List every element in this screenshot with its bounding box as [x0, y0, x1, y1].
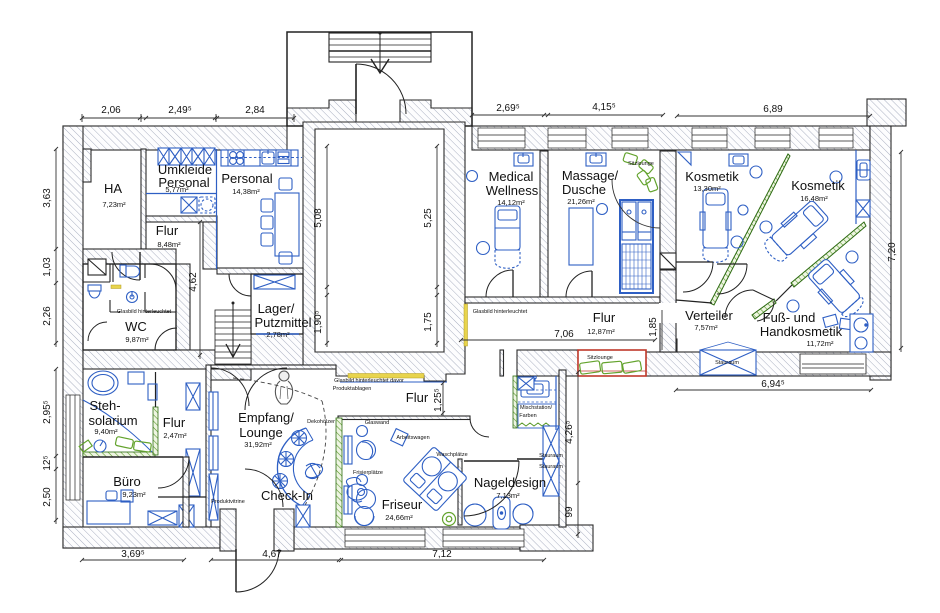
svg-text:Büro: Büro	[113, 474, 140, 489]
svg-text:2,69⁵: 2,69⁵	[496, 103, 520, 114]
svg-text:Massage/: Massage/	[562, 168, 619, 183]
svg-text:Flur: Flur	[163, 415, 186, 430]
svg-text:Produktablagen: Produktablagen	[333, 386, 372, 392]
svg-text:Putzmittel: Putzmittel	[254, 315, 311, 330]
svg-text:7,13m²: 7,13m²	[496, 491, 520, 500]
svg-text:Glasbild hinterleuchtet: Glasbild hinterleuchtet	[473, 309, 528, 315]
svg-text:5,25: 5,25	[423, 208, 434, 228]
svg-text:Verteiler: Verteiler	[685, 308, 733, 323]
svg-text:2,49⁵: 2,49⁵	[168, 105, 192, 116]
svg-text:14,38m²: 14,38m²	[232, 187, 260, 196]
svg-text:Stauraum: Stauraum	[715, 360, 739, 366]
svg-text:4,26⁵: 4,26⁵	[564, 420, 575, 444]
svg-text:9,40m²: 9,40m²	[94, 427, 118, 436]
svg-text:Waschplätze: Waschplätze	[436, 452, 467, 458]
svg-text:5,77m²: 5,77m²	[165, 185, 189, 194]
svg-text:Personal: Personal	[221, 171, 272, 186]
svg-text:1,75: 1,75	[423, 312, 434, 332]
svg-text:Handkosmetik: Handkosmetik	[760, 324, 843, 339]
svg-text:16,48m²: 16,48m²	[800, 194, 828, 203]
svg-text:Kosmetik: Kosmetik	[791, 178, 845, 193]
svg-text:12,87m²: 12,87m²	[587, 327, 615, 336]
svg-text:6,89: 6,89	[763, 104, 783, 115]
svg-text:Flur: Flur	[406, 390, 429, 405]
svg-text:2,26: 2,26	[42, 306, 53, 326]
svg-text:Frisierplätze: Frisierplätze	[353, 470, 383, 476]
svg-text:14,12m²: 14,12m²	[497, 198, 525, 207]
svg-text:Mischstation/: Mischstation/	[520, 405, 553, 411]
svg-text:2,78m²: 2,78m²	[266, 330, 290, 339]
svg-text:11,72m²: 11,72m²	[807, 339, 834, 348]
svg-text:Sitzlounge: Sitzlounge	[587, 355, 613, 361]
svg-text:Fuß- und: Fuß- und	[763, 310, 816, 325]
svg-text:Steh-: Steh-	[89, 398, 120, 413]
svg-text:4,15⁵: 4,15⁵	[592, 102, 616, 113]
svg-text:Arbeitswagen: Arbeitswagen	[396, 435, 429, 441]
svg-text:solarium: solarium	[88, 413, 137, 428]
svg-text:Flur: Flur	[593, 310, 616, 325]
svg-text:6,94⁵: 6,94⁵	[761, 379, 785, 390]
svg-text:99: 99	[564, 506, 575, 518]
svg-text:7,06: 7,06	[554, 329, 574, 340]
svg-text:Check-In: Check-In	[261, 488, 313, 503]
svg-text:3,63: 3,63	[42, 188, 53, 208]
svg-text:31,92m²: 31,92m²	[244, 440, 272, 449]
svg-text:Empfang/: Empfang/	[238, 410, 294, 425]
svg-text:HA: HA	[104, 181, 122, 196]
svg-text:4,67: 4,67	[262, 549, 282, 560]
svg-text:Glaswand: Glaswand	[365, 420, 389, 426]
svg-text:Sitzlounge: Sitzlounge	[628, 161, 654, 167]
svg-text:Stauraum: Stauraum	[539, 453, 563, 459]
svg-text:Glasbild hinterleuchtet: Glasbild hinterleuchtet	[117, 309, 172, 315]
svg-text:Dusche: Dusche	[562, 182, 606, 197]
svg-text:WC: WC	[125, 319, 147, 334]
svg-text:Stauraum: Stauraum	[539, 464, 563, 470]
svg-text:24,66m²: 24,66m²	[385, 513, 413, 522]
svg-text:2,84: 2,84	[245, 105, 265, 116]
svg-text:Medical: Medical	[489, 169, 534, 184]
svg-text:1,25⁵: 1,25⁵	[433, 388, 444, 412]
svg-text:2,50: 2,50	[42, 487, 53, 507]
svg-text:Farben: Farben	[519, 413, 536, 419]
svg-text:Friseur: Friseur	[382, 497, 423, 512]
svg-text:4,62: 4,62	[188, 272, 199, 292]
svg-text:5,08: 5,08	[313, 208, 324, 228]
svg-text:2,06: 2,06	[101, 105, 121, 116]
svg-text:1,85: 1,85	[648, 317, 659, 337]
svg-text:2,47m²: 2,47m²	[163, 431, 187, 440]
svg-text:Dekohölzer: Dekohölzer	[307, 419, 335, 425]
svg-text:21,26m²: 21,26m²	[567, 197, 595, 206]
svg-text:2,95⁵: 2,95⁵	[42, 400, 53, 424]
svg-text:Flur: Flur	[156, 223, 179, 238]
svg-text:Lounge: Lounge	[239, 425, 282, 440]
svg-text:Produktvitrine: Produktvitrine	[211, 499, 245, 505]
svg-text:7,20: 7,20	[887, 242, 898, 262]
svg-text:9,87m²: 9,87m²	[125, 335, 149, 344]
svg-text:Lager/: Lager/	[258, 301, 295, 316]
svg-text:Nageldesign: Nageldesign	[474, 475, 546, 490]
svg-text:7,12: 7,12	[432, 549, 452, 560]
svg-text:Glasbild hinterleuchtet davor: Glasbild hinterleuchtet davor	[334, 378, 404, 384]
svg-text:7,23m²: 7,23m²	[102, 200, 126, 209]
svg-text:7,57m²: 7,57m²	[694, 323, 718, 332]
svg-text:9,23m²: 9,23m²	[122, 490, 146, 499]
svg-text:1,03: 1,03	[42, 257, 53, 277]
svg-text:8,48m²: 8,48m²	[157, 240, 181, 249]
svg-text:Wellness: Wellness	[486, 183, 539, 198]
svg-text:13,30m²: 13,30m²	[693, 184, 721, 193]
svg-text:1,90⁵: 1,90⁵	[313, 310, 324, 334]
svg-text:Kosmetik: Kosmetik	[685, 169, 739, 184]
svg-text:12⁵: 12⁵	[42, 455, 53, 470]
svg-text:3,69⁵: 3,69⁵	[121, 549, 145, 560]
